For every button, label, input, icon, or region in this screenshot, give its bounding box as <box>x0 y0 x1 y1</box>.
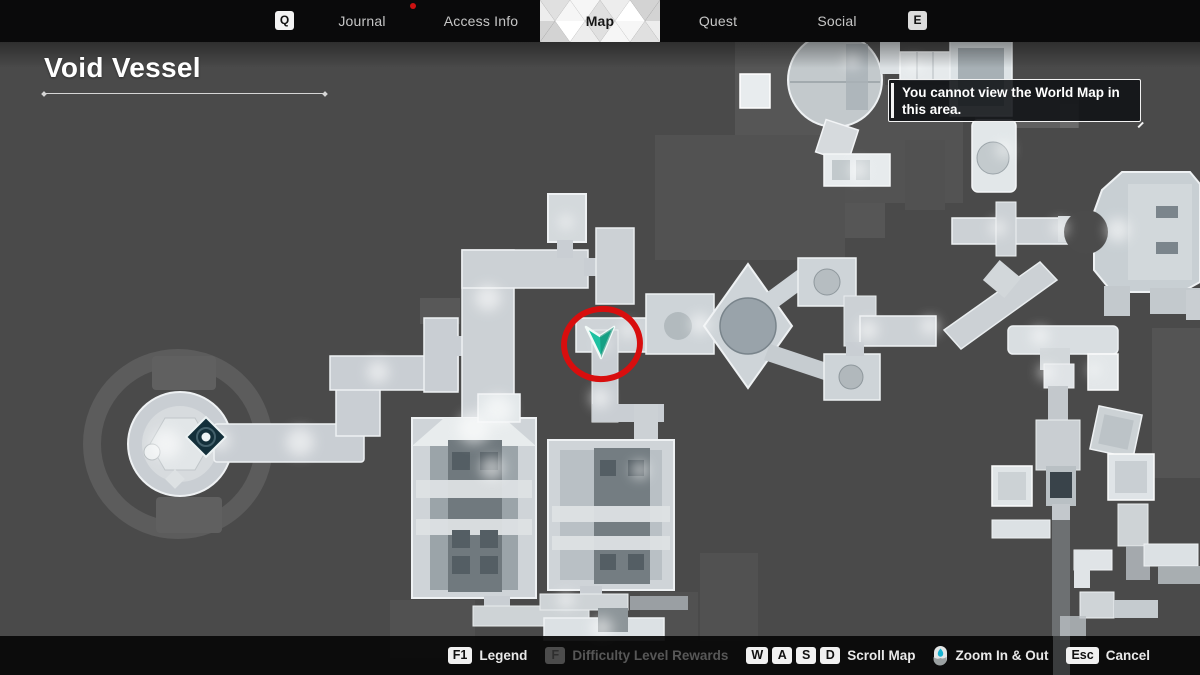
map-shape <box>596 228 634 304</box>
map-shape <box>480 456 504 480</box>
hotkey-bar: F1LegendFDifficulty Level RewardsWASDScr… <box>0 636 1200 675</box>
map-shape <box>1156 242 1178 254</box>
map-shape <box>1036 420 1080 470</box>
map-shape <box>558 592 574 608</box>
hotkey-label: Scroll Map <box>847 648 915 663</box>
map-shape <box>452 530 470 548</box>
map-shape <box>540 594 628 610</box>
map-shape <box>1152 328 1200 478</box>
title-underline <box>44 93 325 94</box>
tab-label: Social <box>817 13 856 29</box>
map-shape <box>839 365 863 389</box>
tab-social[interactable]: Social <box>817 0 856 42</box>
map-shape <box>814 269 840 295</box>
key-badge-s: S <box>796 647 816 664</box>
map-shape <box>990 220 1006 236</box>
map-shape <box>992 520 1050 538</box>
map-shape <box>452 556 470 574</box>
map-shape <box>846 342 864 356</box>
map-shape <box>1106 218 1130 242</box>
notification-dot <box>410 3 416 9</box>
mouse-scroll-icon <box>933 645 948 666</box>
hotkey-label: Cancel <box>1106 648 1150 663</box>
map-shape <box>452 452 470 470</box>
tab-label: Quest <box>699 13 737 29</box>
key-badge-a: A <box>772 647 792 664</box>
map-shape <box>559 215 573 229</box>
map-shape <box>740 74 770 108</box>
tab-label: Journal <box>338 13 385 29</box>
map-shape <box>631 461 649 479</box>
screen: Void Vessel You cannot view the World Ma… <box>0 0 1200 675</box>
map-shape <box>202 433 211 442</box>
map-shape <box>628 554 644 570</box>
area-title-block: Void Vessel <box>44 52 325 94</box>
map-shape <box>1098 414 1134 450</box>
map-shape <box>1074 550 1090 588</box>
map-shape <box>1144 544 1198 566</box>
hotkey-difficulty-level-rewards[interactable]: FDifficulty Level Rewards <box>545 647 728 664</box>
map-shape <box>858 320 878 340</box>
map-shape <box>600 460 616 476</box>
page-title: Void Vessel <box>44 52 325 84</box>
map-shape <box>880 38 900 74</box>
map-shape <box>1186 290 1200 320</box>
world-map-tooltip: You cannot view the World Map in this ar… <box>888 79 1141 122</box>
map-shape <box>552 506 670 522</box>
map-shape <box>1158 566 1200 584</box>
map-shape <box>1115 461 1147 493</box>
map-shape <box>998 472 1026 500</box>
tab-map[interactable]: Map <box>540 0 660 42</box>
map-shape <box>416 519 532 535</box>
map-shape <box>700 553 758 641</box>
map-shape <box>600 554 616 570</box>
map-shape <box>1088 364 1100 376</box>
map-shape <box>480 530 498 548</box>
map-shape <box>844 52 860 68</box>
tab-quest[interactable]: Quest <box>699 0 737 42</box>
map-shape <box>996 142 1012 158</box>
map-shape <box>655 135 845 260</box>
map-shape <box>367 361 389 383</box>
map-shape <box>152 356 216 390</box>
key-hints: F1 <box>448 647 473 664</box>
map-shape <box>907 57 921 71</box>
tab-journal[interactable]: Journal <box>338 0 385 42</box>
key-hints: F <box>545 647 565 664</box>
map-shape <box>720 298 776 354</box>
map-shape <box>1038 364 1054 380</box>
key-badge-e[interactable]: E <box>908 11 927 30</box>
key-badge-f1: F1 <box>448 647 473 664</box>
map-shape <box>1048 386 1068 424</box>
map-shape <box>156 497 222 533</box>
key-badge-d: D <box>820 647 840 664</box>
map-shape <box>690 314 710 334</box>
map-shape <box>1052 504 1070 520</box>
tab-label: Access Info <box>444 13 519 29</box>
map-shape <box>664 312 692 340</box>
map-shape <box>1104 286 1130 316</box>
hotkey-label: Difficulty Level Rewards <box>572 648 728 663</box>
map-shape <box>921 317 939 335</box>
hotkey-scroll-map[interactable]: WASDScroll Map <box>746 647 915 664</box>
map-shape <box>1114 600 1158 618</box>
map-shape <box>832 160 850 180</box>
top-tab-bar: Q E JournalAccess InfoMapQuestSocial <box>0 0 1200 42</box>
map-shape <box>286 428 314 456</box>
key-hints: Esc <box>1066 647 1098 664</box>
map-shape <box>1050 472 1072 498</box>
map-shape <box>590 388 610 408</box>
key-badge-f: F <box>545 647 565 664</box>
map-shape <box>1031 327 1049 345</box>
map-shape <box>1128 184 1192 280</box>
map-shape <box>1080 592 1114 618</box>
key-badge-esc: Esc <box>1066 647 1098 664</box>
map-shape <box>416 480 532 498</box>
map-shape <box>905 140 945 210</box>
hotkey-legend[interactable]: F1Legend <box>448 647 528 664</box>
key-badge-q[interactable]: Q <box>275 11 294 30</box>
map-shape <box>552 536 670 550</box>
tab-label: Map <box>586 13 615 29</box>
map-shape <box>480 556 498 574</box>
hotkey-label: Zoom In & Out <box>955 648 1048 663</box>
map-shape <box>475 285 501 311</box>
tooltip-text: You cannot view the World Map in this ar… <box>889 80 1140 118</box>
tab-access-info[interactable]: Access Info <box>444 0 519 42</box>
key-hints: WASD <box>746 647 840 664</box>
hotkey-zoom-in-out[interactable]: Zoom In & Out <box>933 645 1048 666</box>
map-shape <box>630 596 688 610</box>
map-shape <box>458 412 490 444</box>
map-shape <box>557 240 573 258</box>
map-shape <box>1052 220 1068 236</box>
map-shape <box>1156 206 1178 218</box>
map-shape <box>1064 210 1108 254</box>
hotkey-actions: F1LegendFDifficulty Level RewardsWASDScr… <box>448 636 1150 675</box>
map-shape <box>1118 504 1148 546</box>
hotkey-label: Legend <box>479 648 527 663</box>
key-badge-w: W <box>746 647 768 664</box>
hotkey-cancel[interactable]: EscCancel <box>1066 647 1150 664</box>
map-shape <box>849 161 867 179</box>
map-shape <box>151 429 181 459</box>
